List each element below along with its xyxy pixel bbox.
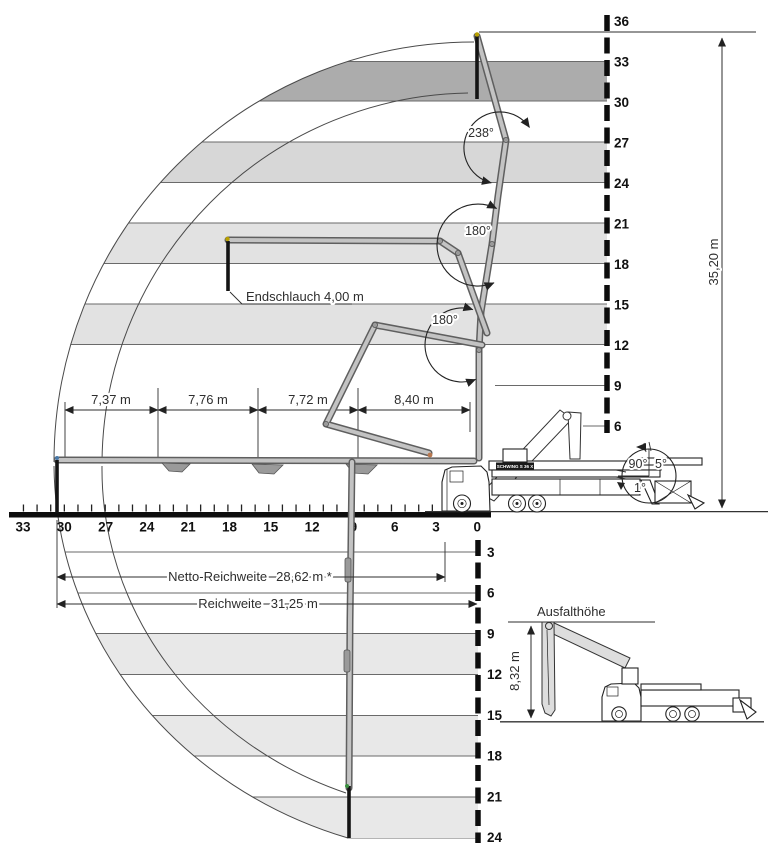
wheels xyxy=(454,495,546,512)
unfolding-height-inset: Ausfalthöhe 8,32 m xyxy=(500,604,764,722)
slew-angle-1: 1° xyxy=(634,481,646,495)
inset-turret xyxy=(622,668,638,684)
axis-label: 21 xyxy=(181,520,197,535)
axis-label: 30 xyxy=(57,520,72,535)
axis-label: 36 xyxy=(614,14,630,29)
axis-label: 3 xyxy=(487,545,495,560)
band-below-9-12 xyxy=(0,634,478,675)
section-length-3: 7,72 m xyxy=(288,392,328,407)
knuckle-joint xyxy=(252,464,283,474)
axis-label: 27 xyxy=(98,520,113,535)
lower-vertical-axis-labels: 3 6 9 12 15 18 21 24 xyxy=(487,545,503,845)
boom-tip-marker xyxy=(55,456,59,460)
axis-label: 9 xyxy=(614,379,622,394)
axis-label: 15 xyxy=(263,520,279,535)
inset-boom-elbow xyxy=(546,623,553,630)
axis-label: 18 xyxy=(222,520,238,535)
axis-label: 12 xyxy=(487,667,502,682)
axis-label: 21 xyxy=(614,217,630,232)
band-below-15-18 xyxy=(0,716,478,757)
boom-position-ground xyxy=(55,456,474,513)
knuckle-joint xyxy=(344,650,350,672)
axis-label: 33 xyxy=(15,520,31,535)
angle-value: 180° xyxy=(432,313,458,327)
band-12-15 xyxy=(0,304,607,345)
gross-reach-label: Reichweite31,25 m xyxy=(198,596,318,611)
band-30-33 xyxy=(0,62,607,102)
axis-label: 12 xyxy=(305,520,320,535)
turret xyxy=(503,449,527,462)
axis-label: 18 xyxy=(614,257,630,272)
inset-boom-diagonal xyxy=(549,622,630,668)
inset-deck xyxy=(641,684,701,690)
axis-label: 15 xyxy=(614,298,630,313)
diagram-canvas: 36 33 30 27 24 21 18 15 12 9 6 3 6 9 12 … xyxy=(0,0,780,858)
knuckle-joint xyxy=(162,463,190,472)
boom-position-below-ground xyxy=(344,462,352,838)
chassis xyxy=(492,479,640,495)
axis-label: 24 xyxy=(614,176,630,191)
boom-tip-marker xyxy=(345,784,349,788)
knuckle-joint xyxy=(345,558,351,582)
slew-angle-90: 90° xyxy=(629,457,648,471)
section-length-1: 7,37 m xyxy=(91,392,131,407)
angle-value: 180° xyxy=(465,224,491,238)
axis-label: 24 xyxy=(487,830,503,845)
upper-vertical-axis-labels: 36 33 30 27 24 21 18 15 12 9 6 xyxy=(614,14,630,434)
axis-label: 15 xyxy=(487,708,503,723)
boom-tip-marker xyxy=(225,237,229,241)
axis-label: 9 xyxy=(487,626,495,641)
reach-height-value: 35,20 m xyxy=(706,239,721,286)
axis-label: 24 xyxy=(139,520,155,535)
brand-badge-text: SCHWING S 36 X xyxy=(497,464,534,469)
inset-title: Ausfalthöhe xyxy=(537,604,606,619)
slew-angle-5: 5° xyxy=(655,457,667,471)
boom-working-range-diagram: 36 33 30 27 24 21 18 15 12 9 6 3 6 9 12 … xyxy=(0,0,780,858)
axis-label: 3 xyxy=(432,520,440,535)
axis-label: 18 xyxy=(487,749,503,764)
inset-boom-vertical xyxy=(542,622,555,716)
inset-chassis xyxy=(641,690,739,706)
axis-label: 6 xyxy=(391,520,399,535)
axis-label: 6 xyxy=(487,586,495,601)
axis-label: 12 xyxy=(614,338,629,353)
axis-label: 30 xyxy=(614,95,629,110)
axis-label: 33 xyxy=(614,55,630,70)
axis-label: 21 xyxy=(487,789,503,804)
section-length-2: 7,76 m xyxy=(188,392,228,407)
inset-height-value: 8,32 m xyxy=(507,651,522,691)
inset-truck xyxy=(602,668,756,721)
angle-value: 238° xyxy=(468,126,494,140)
axis-label: 27 xyxy=(614,136,629,151)
axis-label: 0 xyxy=(474,520,482,535)
band-below-21-24 xyxy=(0,797,478,839)
net-reach-label: Netto-Reichweite28,62 m * xyxy=(168,569,332,584)
band-24-27 xyxy=(0,142,607,183)
end-hose-callout: Endschlauch 4,00 m xyxy=(230,289,364,304)
reach-height-dimension: 35,20 m xyxy=(706,38,722,508)
end-hose-label: Endschlauch 4,00 m xyxy=(246,289,364,304)
section-length-4: 8,40 m xyxy=(394,392,434,407)
boom-tip-marker xyxy=(475,32,479,36)
horizontal-axis-labels: 33 30 27 24 21 18 15 12 9 6 3 0 xyxy=(15,520,481,535)
boom-tip-marker xyxy=(428,453,433,458)
axis-label: 6 xyxy=(614,419,622,434)
